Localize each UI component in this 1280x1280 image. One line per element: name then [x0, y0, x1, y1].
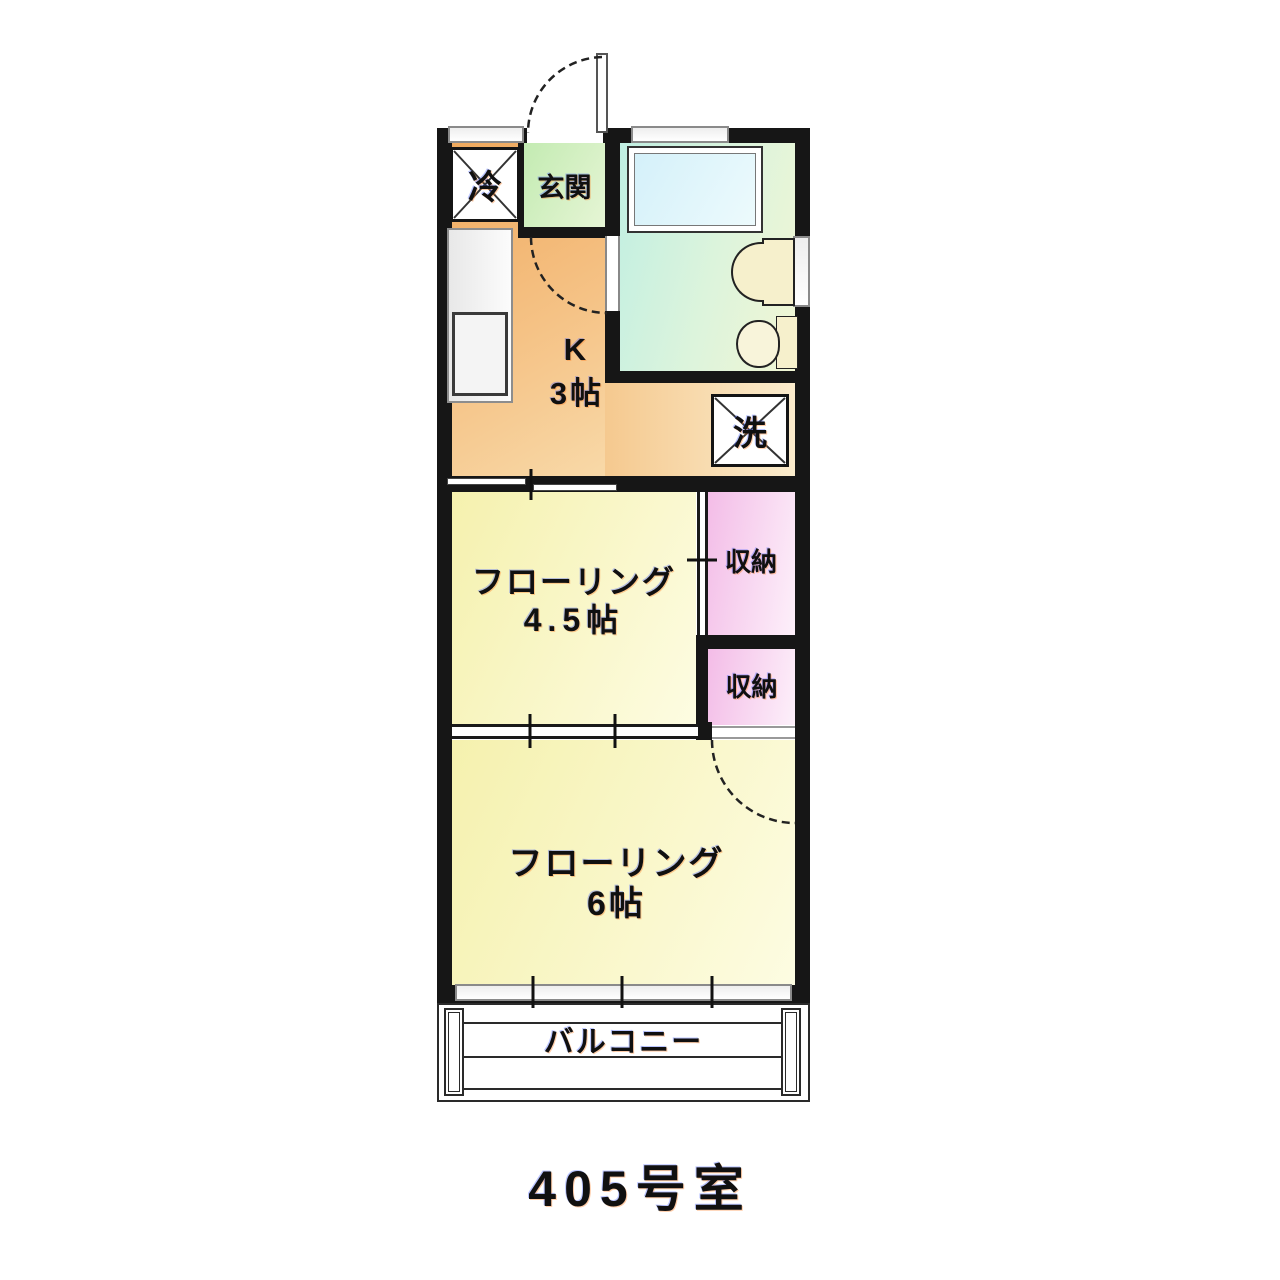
wall-storage-left-lower — [696, 649, 708, 725]
sliding-door-room45-room6 — [452, 724, 698, 739]
window-top-bath — [631, 126, 729, 143]
room-4-5-label-line1: フローリング — [452, 561, 696, 599]
wash-basin-counter — [762, 238, 795, 306]
room-6-label-line2: 6帖 — [445, 880, 788, 920]
kitchen-label-line1: K — [545, 332, 605, 368]
refrigerator-label: 冷 — [450, 163, 520, 205]
storage-upper-label: 収納 — [707, 544, 795, 576]
washer-label: 洗 — [711, 411, 789, 449]
floor-plan-canvas: 冷 玄関 K 3帖 洗 フローリング 4.5帖 収納 収納 フローリング 6帖 … — [0, 0, 1280, 1280]
entrance-door-arc — [528, 57, 602, 133]
balcony-label: バルコニー — [452, 1022, 795, 1056]
window-balcony-door — [455, 984, 792, 1001]
wall-post-room45-room6 — [696, 722, 712, 740]
storage-lower-label: 収納 — [708, 669, 795, 701]
balcony-rail-line-3 — [464, 1088, 781, 1090]
entrance-doorway-gap — [527, 128, 603, 143]
wall-storage-divider — [696, 635, 795, 649]
window-top-left — [448, 126, 524, 143]
bathroom-door-gap — [605, 236, 620, 311]
closet-door-opening — [712, 726, 795, 739]
sliding-door-slot-a — [447, 478, 526, 485]
entrance-door-leaf — [596, 53, 608, 133]
room-4-5-label-line2: 4.5帖 — [452, 599, 696, 637]
entrance-label: 玄関 — [524, 168, 605, 202]
sliding-door-slot-b — [533, 484, 617, 491]
kitchen-label-line2: 3帖 — [522, 372, 632, 408]
bathtub — [627, 146, 763, 233]
wall-entrance-bottom — [518, 227, 618, 238]
toilet-bowl — [736, 320, 780, 368]
wall-bath-bottom — [605, 371, 795, 383]
kitchen-sink — [452, 312, 508, 396]
room-6-label-line1: フローリング — [445, 840, 788, 880]
unit-title: 405号室 — [0, 1155, 1280, 1215]
window-right-basin — [793, 236, 810, 307]
